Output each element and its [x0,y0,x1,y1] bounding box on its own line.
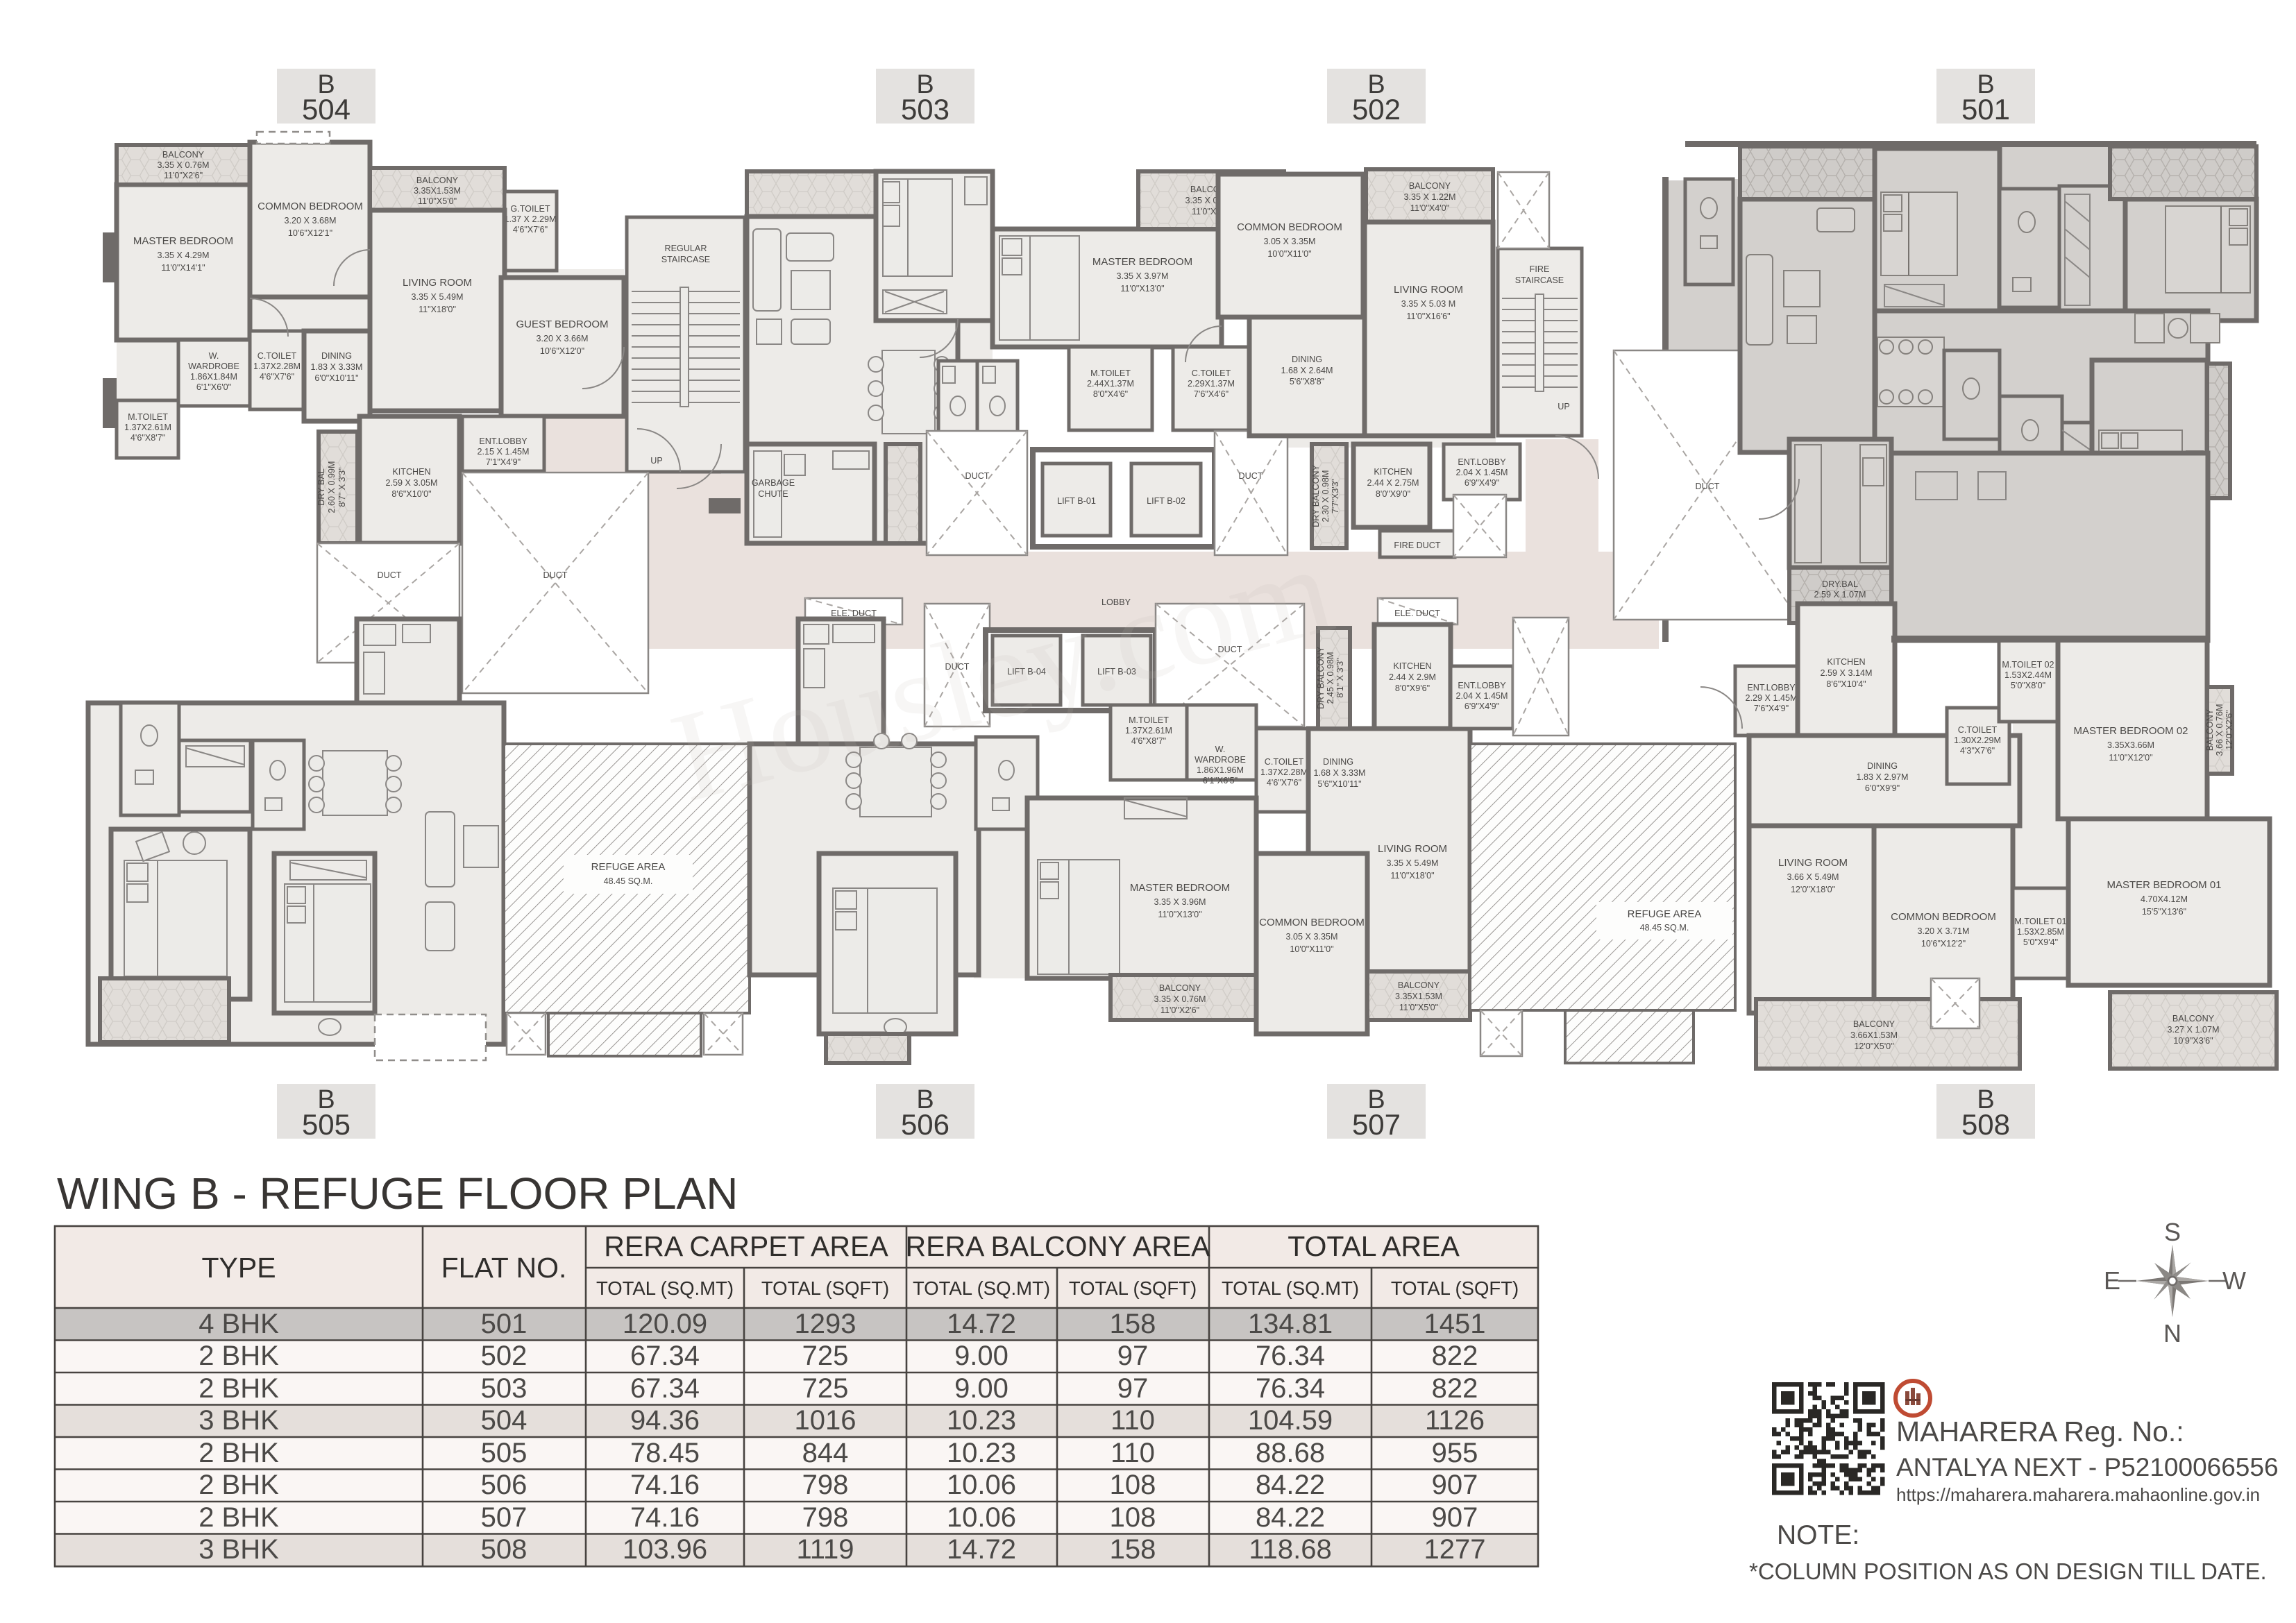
svg-text:5'0"X9'4": 5'0"X9'4" [2023,937,2058,947]
svg-text:5'6"X8'8": 5'6"X8'8" [1290,377,1324,386]
svg-text:14.72: 14.72 [947,1534,1016,1565]
svg-text:STAIRCASE: STAIRCASE [661,255,710,264]
svg-text:GUEST BEDROOM: GUEST BEDROOM [516,318,608,330]
svg-text:907: 907 [1432,1502,1478,1533]
svg-text:REFUGE AREA: REFUGE AREA [1628,908,1702,920]
svg-text:BALCONY: BALCONY [1398,980,1440,990]
svg-text:C.TOILET: C.TOILET [1192,368,1231,378]
svg-text:BALCONY: BALCONY [2205,708,2215,751]
svg-text:502: 502 [1352,93,1401,126]
svg-text:DUCT: DUCT [1696,482,1720,491]
svg-text:1.37 X 2.29M: 1.37 X 2.29M [505,214,557,224]
svg-text:UP: UP [1558,402,1570,411]
svg-text:2 BHK: 2 BHK [199,1470,279,1500]
svg-text:ENT.LOBBY: ENT.LOBBY [1458,457,1506,467]
svg-text:501: 501 [481,1309,527,1339]
svg-text:3.27 X 1.07M: 3.27 X 1.07M [2168,1025,2220,1035]
svg-text:ELE. DUCT: ELE. DUCT [1394,609,1440,618]
svg-text:ENT.LOBBY: ENT.LOBBY [1458,681,1506,690]
svg-text:2 BHK: 2 BHK [199,1341,279,1371]
svg-text:3.05 X 3.35M: 3.05 X 3.35M [1286,932,1338,942]
svg-text:2.30 X 0.98M: 2.30 X 0.98M [1321,470,1331,522]
svg-text:505: 505 [302,1108,351,1141]
svg-text:DINING: DINING [321,351,352,361]
svg-text:11'0"X14'1": 11'0"X14'1" [161,263,205,273]
svg-text:MASTER BEDROOM 01: MASTER BEDROOM 01 [2107,879,2221,891]
svg-text:E: E [2104,1266,2120,1295]
svg-text:COMMON BEDROOM: COMMON BEDROOM [258,201,363,212]
svg-text:TYPE: TYPE [201,1252,276,1284]
svg-text:1.83 X 2.97M: 1.83 X 2.97M [1857,772,1909,782]
svg-text:TOTAL AREA: TOTAL AREA [1288,1230,1460,1262]
svg-text:507: 507 [481,1502,527,1533]
svg-text:UP: UP [650,456,663,466]
svg-text:LIVING ROOM: LIVING ROOM [1394,284,1463,296]
svg-text:MASTER BEDROOM: MASTER BEDROOM [1092,256,1192,268]
svg-text:1.86X1.96M: 1.86X1.96M [1197,765,1244,775]
svg-text:4'6"X8'7": 4'6"X8'7" [1131,736,1166,746]
svg-text:3.35 X 1.22M: 3.35 X 1.22M [1404,192,1456,202]
svg-text:NOTE:: NOTE: [1777,1520,1859,1550]
svg-text:844: 844 [802,1438,849,1468]
svg-text:2.04 X 1.45M: 2.04 X 1.45M [1456,691,1508,701]
svg-text:4 BHK: 4 BHK [199,1309,279,1339]
svg-text:8'0"X9'6": 8'0"X9'6" [1395,683,1430,693]
svg-text:120.09: 120.09 [623,1309,707,1339]
svg-text:3.35 X 5.49M: 3.35 X 5.49M [412,292,464,302]
svg-text:2.60 X 0.99M: 2.60 X 0.99M [327,461,337,513]
svg-text:103.96: 103.96 [623,1534,707,1565]
svg-text:3.35 X 3.96M: 3.35 X 3.96M [1154,897,1206,907]
svg-text:4'3"X7'6": 4'3"X7'6" [1960,746,1995,756]
svg-text:3.66 X 0.76M: 3.66 X 0.76M [2215,704,2225,756]
svg-text:108: 108 [1110,1470,1156,1500]
svg-text:M.TOILET: M.TOILET [1129,715,1169,725]
svg-text:8'1" X 3'3": 8'1" X 3'3" [1335,658,1345,697]
svg-text:3.35 X 0.76M: 3.35 X 0.76M [158,160,210,170]
svg-text:KITCHEN: KITCHEN [1374,467,1412,477]
svg-text:2 BHK: 2 BHK [199,1438,279,1468]
svg-text:STAIRCASE: STAIRCASE [1515,275,1564,285]
svg-text:3.35 X 0.76M: 3.35 X 0.76M [1154,994,1206,1004]
svg-text:2.04 X 1.45M: 2.04 X 1.45M [1456,468,1508,477]
svg-text:KITCHEN: KITCHEN [1393,661,1431,671]
svg-text:3.05 X 3.35M: 3.05 X 3.35M [1264,237,1316,246]
svg-text:G.TOILET: G.TOILET [510,204,550,214]
svg-text:1016: 1016 [795,1405,856,1436]
svg-text:508: 508 [481,1534,527,1565]
svg-text:3.35X1.53M: 3.35X1.53M [414,186,461,196]
svg-text:158: 158 [1110,1309,1156,1339]
svg-text:88.68: 88.68 [1256,1438,1325,1468]
svg-text:FIRE: FIRE [1530,264,1550,274]
svg-text:7'6"X4'9": 7'6"X4'9" [1754,704,1789,713]
svg-text:GARBAGE: GARBAGE [752,478,795,488]
svg-text:8'6"X10'4": 8'6"X10'4" [1826,679,1866,689]
svg-text:W: W [2222,1266,2246,1295]
svg-text:822: 822 [1432,1341,1478,1371]
svg-text:W.: W. [1215,745,1226,754]
svg-text:DUCT: DUCT [543,570,568,580]
svg-text:REFUGE AREA: REFUGE AREA [591,861,666,873]
svg-text:LIFT B-01: LIFT B-01 [1057,496,1096,506]
svg-text:798: 798 [802,1502,849,1533]
svg-text:WARDROBE: WARDROBE [188,362,239,371]
svg-text:TOTAL (SQ.MT): TOTAL (SQ.MT) [596,1277,734,1299]
svg-text:3.35X3.66M: 3.35X3.66M [2107,740,2154,750]
svg-text:M.TOILET 01: M.TOILET 01 [2014,917,2066,926]
svg-text:118.68: 118.68 [1249,1534,1331,1565]
svg-text:6'0"X9'9": 6'0"X9'9" [1865,783,1900,793]
svg-text:134.81: 134.81 [1248,1309,1333,1339]
svg-text:504: 504 [302,93,351,126]
svg-text:1.86X1.84M: 1.86X1.84M [190,372,237,382]
svg-text:3.66 X 5.49M: 3.66 X 5.49M [1787,872,1839,882]
svg-text:KITCHEN: KITCHEN [392,467,430,477]
svg-text:10'6"X12'2": 10'6"X12'2" [1921,939,1966,949]
svg-text:ENT.LOBBY: ENT.LOBBY [479,436,527,446]
svg-text:76.34: 76.34 [1256,1341,1325,1371]
svg-text:10.23: 10.23 [947,1405,1016,1436]
svg-text:2.59 X 3.05M: 2.59 X 3.05M [386,478,438,488]
svg-text:3.35 X 5.03 M: 3.35 X 5.03 M [1401,299,1455,309]
svg-text:2.15 X 1.45M: 2.15 X 1.45M [478,447,530,457]
svg-text:M.TOILET 02: M.TOILET 02 [2002,660,2054,670]
svg-text:76.34: 76.34 [1256,1373,1325,1404]
svg-text:505: 505 [481,1438,527,1468]
svg-text:11'0"X16'6": 11'0"X16'6" [1406,312,1450,321]
svg-text:11'0"X12'0": 11'0"X12'0" [2109,753,2152,763]
svg-text:COMMON BEDROOM: COMMON BEDROOM [1237,221,1342,233]
svg-text:501: 501 [1961,93,2010,126]
svg-text:MAHARERA Reg. No.:: MAHARERA Reg. No.: [1896,1416,2184,1447]
svg-text:97: 97 [1117,1341,1149,1371]
svg-text:DUCT: DUCT [965,471,990,481]
svg-text:8'7" X 3'3": 8'7" X 3'3" [337,467,347,507]
svg-text:1126: 1126 [1425,1405,1485,1436]
svg-text:6'9"X4'9": 6'9"X4'9" [1464,702,1499,711]
svg-text:2.44X1.37M: 2.44X1.37M [1087,379,1134,389]
svg-text:C.TOILET: C.TOILET [258,351,297,361]
svg-text:RERA BALCONY AREA: RERA BALCONY AREA [905,1230,1210,1262]
svg-text:FIRE DUCT: FIRE DUCT [1394,541,1440,550]
svg-text:14.72: 14.72 [947,1309,1016,1339]
svg-text:3.66X1.53M: 3.66X1.53M [1850,1030,1898,1040]
svg-text:78.45: 78.45 [630,1438,700,1468]
svg-text:12'0"X2'6": 12'0"X2'6" [2225,710,2234,749]
svg-text:504: 504 [481,1405,527,1436]
svg-text:COMMON BEDROOM: COMMON BEDROOM [1891,911,1996,923]
svg-text:5'0"X8'0": 5'0"X8'0" [2011,681,2045,690]
svg-text:67.34: 67.34 [630,1373,700,1404]
svg-text:https://maharera.maharera.maha: https://maharera.maharera.mahaonline.gov… [1896,1484,2260,1505]
svg-text:3.35 X 4.29M: 3.35 X 4.29M [158,250,210,260]
svg-text:4'6"X8'7": 4'6"X8'7" [130,433,165,443]
svg-text:10'6"X12'1": 10'6"X12'1" [288,228,332,238]
svg-text:2.59 X 1.07M: 2.59 X 1.07M [1814,590,1866,600]
svg-text:TOTAL (SQ.MT): TOTAL (SQ.MT) [913,1277,1050,1299]
svg-text:507: 507 [1352,1108,1401,1141]
svg-text:C.TOILET: C.TOILET [1958,725,1998,735]
svg-text:2.44 X 2.9M: 2.44 X 2.9M [1389,672,1436,682]
svg-text:DINING: DINING [1323,757,1353,767]
svg-text:798: 798 [802,1470,849,1500]
svg-text:8'0"X9'0": 8'0"X9'0" [1376,489,1410,499]
svg-text:TOTAL (SQFT): TOTAL (SQFT) [761,1277,889,1299]
svg-text:12'0"X5'0": 12'0"X5'0" [1854,1042,1893,1051]
svg-text:1.37X2.61M: 1.37X2.61M [124,423,171,432]
svg-text:DRY BAL: DRY BAL [316,468,326,505]
svg-text:6'1"X6'0": 6'1"X6'0" [196,382,231,392]
svg-text:1451: 1451 [1424,1309,1486,1339]
svg-text:LIFT B-02: LIFT B-02 [1147,496,1185,506]
svg-text:74.16: 74.16 [630,1502,700,1533]
svg-text:74.16: 74.16 [630,1470,700,1500]
svg-text:503: 503 [901,93,949,126]
svg-text:1.68 X 2.64M: 1.68 X 2.64M [1281,366,1333,375]
svg-text:DUCT: DUCT [1239,471,1263,481]
svg-text:110: 110 [1111,1438,1155,1468]
svg-text:11'0"X2'6": 11'0"X2'6" [164,171,203,180]
svg-text:3 BHK: 3 BHK [199,1534,279,1565]
svg-text:7'1"X4'9": 7'1"X4'9" [486,457,521,467]
svg-text:11'0"X13'0": 11'0"X13'0" [1158,910,1201,919]
svg-text:2.59 X 3.14M: 2.59 X 3.14M [1821,668,1873,678]
svg-text:11'0"X18'0": 11'0"X18'0" [1390,871,1434,881]
svg-text:LIVING ROOM: LIVING ROOM [1378,843,1447,855]
svg-text:7'6"X4'6": 7'6"X4'6" [1194,389,1229,399]
svg-text:LIVING ROOM: LIVING ROOM [403,277,472,289]
svg-text:1.30X2.29M: 1.30X2.29M [1954,736,2001,745]
svg-text:TOTAL (SQFT): TOTAL (SQFT) [1391,1277,1519,1299]
svg-text:12'0"X18'0": 12'0"X18'0" [1791,885,1835,894]
svg-text:BALCONY: BALCONY [162,150,205,160]
svg-text:3 BHK: 3 BHK [199,1405,279,1436]
svg-text:1119: 1119 [796,1534,854,1565]
svg-text:5'6"X10'11": 5'6"X10'11" [1317,779,1361,789]
svg-text:DINING: DINING [1292,355,1322,364]
svg-text:84.22: 84.22 [1256,1470,1325,1500]
svg-text:2.29 X 1.45M: 2.29 X 1.45M [1746,693,1798,703]
svg-text:822: 822 [1432,1373,1478,1404]
svg-text:3.35 X 5.49M: 3.35 X 5.49M [1387,858,1439,868]
svg-text:110: 110 [1111,1405,1155,1436]
svg-text:6'1"X6'5": 6'1"X6'5" [1203,776,1238,785]
svg-text:MASTER BEDROOM 02: MASTER BEDROOM 02 [2073,725,2188,737]
svg-text:BALCONY: BALCONY [1409,181,1451,191]
svg-text:2 BHK: 2 BHK [199,1373,279,1404]
svg-text:WARDROBE: WARDROBE [1195,755,1246,765]
svg-text:COMMON BEDROOM: COMMON BEDROOM [1259,917,1365,928]
svg-text:10'9"X3'6": 10'9"X3'6" [2173,1036,2213,1046]
svg-text:955: 955 [1432,1438,1478,1468]
svg-text:M.TOILET: M.TOILET [128,412,168,422]
svg-text:3.20 X 3.68M: 3.20 X 3.68M [285,216,337,226]
svg-text:1.68 X 3.33M: 1.68 X 3.33M [1314,768,1366,778]
svg-text:104.59: 104.59 [1248,1405,1333,1436]
svg-text:10.23: 10.23 [947,1438,1016,1468]
svg-text:DUCT: DUCT [378,570,402,580]
svg-text:4'6"X7'6": 4'6"X7'6" [1267,778,1301,788]
svg-text:C.TOILET: C.TOILET [1265,757,1304,767]
svg-text:LIVING ROOM: LIVING ROOM [1778,857,1848,869]
svg-text:RERA CARPET AREA: RERA CARPET AREA [604,1230,888,1262]
svg-text:FLAT NO.: FLAT NO. [441,1252,567,1284]
svg-text:4.70X4.12M: 4.70X4.12M [2141,894,2188,904]
svg-text:BALCONY: BALCONY [1853,1019,1896,1029]
svg-text:3.35 X 3.97M: 3.35 X 3.97M [1117,271,1169,281]
svg-text:M.TOILET: M.TOILET [1090,368,1131,378]
svg-text:8'0"X4'6": 8'0"X4'6" [1093,389,1128,399]
svg-text:2 BHK: 2 BHK [199,1502,279,1533]
svg-text:TOTAL (SQFT): TOTAL (SQFT) [1069,1277,1197,1299]
svg-text:1.53X2.44M: 1.53X2.44M [2004,670,2052,680]
svg-text:1.83 X 3.33M: 1.83 X 3.33M [311,362,363,372]
svg-text:506: 506 [481,1470,527,1500]
svg-text:9.00: 9.00 [954,1373,1008,1404]
svg-text:94.36: 94.36 [630,1405,700,1436]
svg-text:REGULAR: REGULAR [665,244,707,253]
svg-text:6'9"X4'9": 6'9"X4'9" [1464,478,1499,488]
svg-text:ENT.LOBBY: ENT.LOBBY [1747,683,1796,692]
svg-text:1.37X2.28M: 1.37X2.28M [1260,767,1308,777]
svg-text:11'0"X5'0": 11'0"X5'0" [1399,1003,1438,1012]
svg-text:1.53X2.85M: 1.53X2.85M [2017,927,2064,937]
svg-text:907: 907 [1432,1470,1478,1500]
svg-text:BALCONY: BALCONY [2172,1014,2215,1023]
svg-text:*COLUMN POSITION AS ON DESIGN: *COLUMN POSITION AS ON DESIGN TILL DATE. [1749,1558,2267,1584]
svg-text:1.37X2.61M: 1.37X2.61M [1125,726,1172,736]
svg-text:158: 158 [1110,1534,1156,1565]
svg-text:48.45 SQ.M.: 48.45 SQ.M. [1640,923,1689,933]
svg-text:MASTER BEDROOM: MASTER BEDROOM [1130,882,1230,894]
svg-text:DRY BALCONY: DRY BALCONY [1311,464,1321,527]
svg-text:725: 725 [802,1373,849,1404]
svg-text:ANTALYA NEXT - P52100066556: ANTALYA NEXT - P52100066556 [1896,1453,2279,1481]
svg-text:502: 502 [481,1341,527,1371]
svg-text:725: 725 [802,1341,849,1371]
svg-text:MASTER BEDROOM: MASTER BEDROOM [133,235,233,247]
svg-text:503: 503 [481,1373,527,1404]
svg-text:3.20 X 3.66M: 3.20 X 3.66M [537,334,589,343]
svg-text:WING B - REFUGE FLOOR PLAN: WING B - REFUGE FLOOR PLAN [57,1169,738,1218]
svg-text:9.00: 9.00 [954,1341,1008,1371]
svg-text:7'7"X3'3": 7'7"X3'3" [1331,479,1340,513]
svg-text:3.20 X 3.71M: 3.20 X 3.71M [1918,926,1970,936]
svg-text:11'0"X13'0": 11'0"X13'0" [1120,284,1164,294]
svg-text:10.06: 10.06 [947,1502,1016,1533]
svg-text:4'6"X7'6": 4'6"X7'6" [513,225,548,235]
svg-text:11'0"X5'0": 11'0"X5'0" [418,196,457,206]
svg-text:4'6"X7'6": 4'6"X7'6" [260,372,294,382]
svg-text:DRY.BAL: DRY.BAL [1822,579,1858,589]
svg-text:CHUTE: CHUTE [758,489,788,499]
svg-text:3.35X1.53M: 3.35X1.53M [1395,992,1442,1001]
svg-text:S: S [2164,1218,2181,1246]
svg-text:11'0"X2'6": 11'0"X2'6" [1160,1005,1199,1015]
svg-text:W.: W. [209,351,219,361]
svg-text:BALCONY: BALCONY [416,176,459,185]
svg-text:15'5"X13'6": 15'5"X13'6" [2142,907,2186,917]
svg-text:1293: 1293 [795,1309,856,1339]
svg-text:11'0"X4'0": 11'0"X4'0" [1410,203,1449,213]
svg-text:TOTAL (SQ.MT): TOTAL (SQ.MT) [1222,1277,1359,1299]
svg-text:8'6"X10'0": 8'6"X10'0" [391,489,431,499]
svg-text:506: 506 [901,1108,949,1141]
svg-text:10'6"X12'0": 10'6"X12'0" [540,346,584,356]
svg-text:6'0"X10'11": 6'0"X10'11" [314,373,358,383]
svg-text:BALCONY: BALCONY [1159,983,1201,993]
svg-text:10.06: 10.06 [947,1470,1016,1500]
svg-text:1.37X2.28M: 1.37X2.28M [253,362,301,371]
svg-text:N: N [2163,1319,2181,1348]
svg-text:508: 508 [1961,1108,2010,1141]
svg-text:97: 97 [1117,1373,1149,1404]
svg-text:67.34: 67.34 [630,1341,700,1371]
svg-text:2.29X1.37M: 2.29X1.37M [1188,379,1235,389]
svg-text:11"X18'0": 11"X18'0" [419,305,456,314]
svg-text:1277: 1277 [1424,1534,1486,1565]
svg-text:KITCHEN: KITCHEN [1827,657,1865,667]
svg-text:DINING: DINING [1867,761,1898,771]
svg-text:84.22: 84.22 [1256,1502,1325,1533]
svg-text:10'0"X11'0": 10'0"X11'0" [1267,249,1311,259]
svg-text:2.44 X 2.75M: 2.44 X 2.75M [1367,478,1419,488]
svg-text:48.45 SQ.M.: 48.45 SQ.M. [604,876,653,886]
svg-text:108: 108 [1110,1502,1156,1533]
svg-text:10'0"X11'0": 10'0"X11'0" [1290,944,1333,954]
